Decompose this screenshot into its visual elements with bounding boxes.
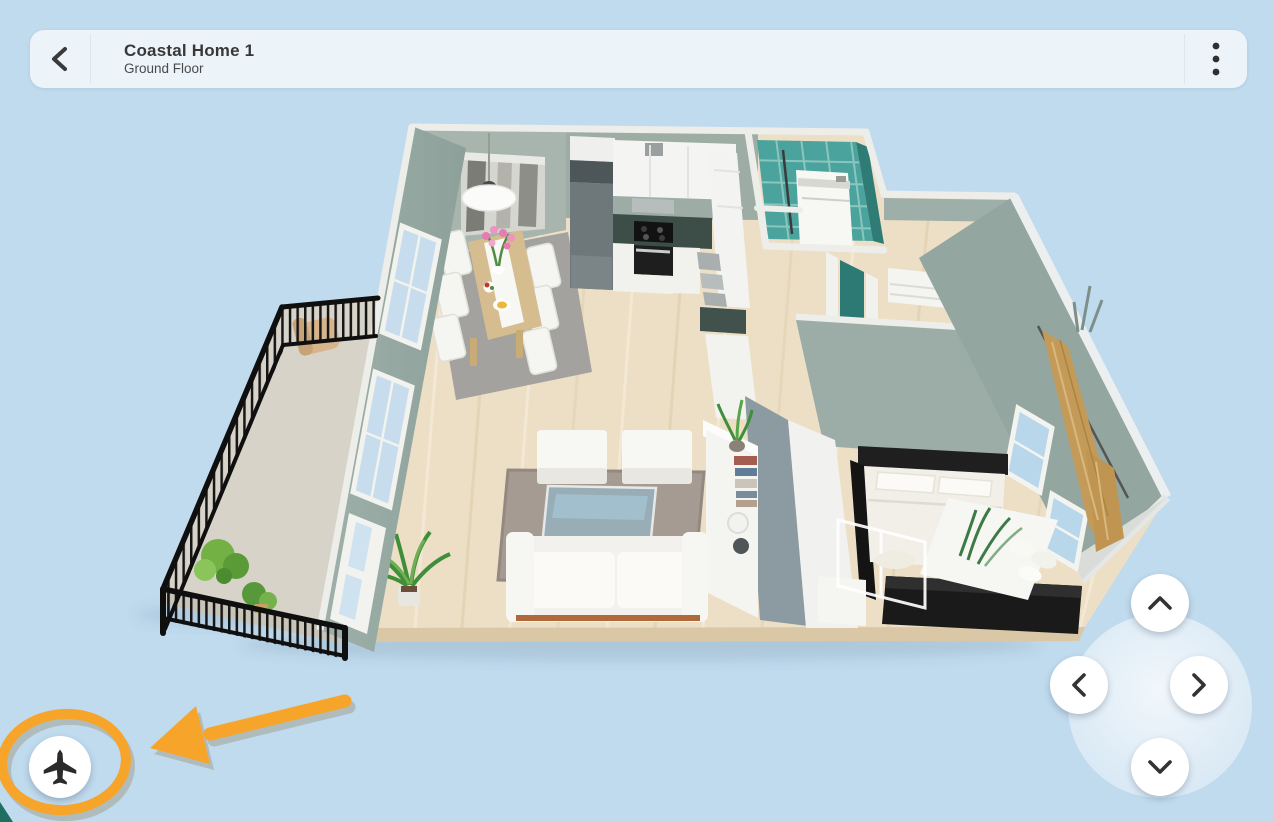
dpad-up-button[interactable]: [1131, 574, 1189, 632]
dpad-right-button[interactable]: [1170, 656, 1228, 714]
page-subtitle: Ground Floor: [124, 61, 1184, 78]
kebab-menu-icon: [1212, 41, 1220, 77]
airplane-icon: [40, 747, 80, 787]
chevron-right-icon: [1191, 672, 1207, 698]
menu-button[interactable]: [1185, 30, 1247, 88]
fly-mode-button[interactable]: [29, 736, 91, 798]
sofa-base-trim: [516, 615, 700, 621]
corner-decoration: [0, 802, 13, 822]
dpad-down-button[interactable]: [1131, 738, 1189, 796]
sofa: [506, 532, 708, 622]
counter-dark: [700, 307, 746, 334]
chevron-left-icon: [49, 46, 71, 72]
grass-decor: [1074, 286, 1102, 332]
header-bar: Coastal Home 1 Ground Floor: [30, 30, 1247, 88]
chevron-up-icon: [1147, 595, 1173, 611]
dpad-left-button[interactable]: [1050, 656, 1108, 714]
washing-machine: [796, 170, 853, 249]
cooktop: [634, 221, 673, 243]
chevron-left-icon: [1071, 672, 1087, 698]
floor-slab-edge: [345, 627, 1085, 642]
chevron-down-icon: [1147, 759, 1173, 775]
bed-pillow-roll: [875, 551, 915, 569]
fridge: [570, 136, 615, 290]
app-canvas: Coastal Home 1 Ground Floor: [0, 0, 1274, 822]
range-hood: [632, 198, 674, 214]
back-button[interactable]: [30, 30, 90, 88]
page-title: Coastal Home 1: [124, 40, 1184, 61]
vent-box: [645, 143, 663, 156]
dpad-control: [1068, 614, 1252, 798]
header-titles: Coastal Home 1 Ground Floor: [91, 30, 1184, 88]
nightstand: [818, 576, 866, 626]
